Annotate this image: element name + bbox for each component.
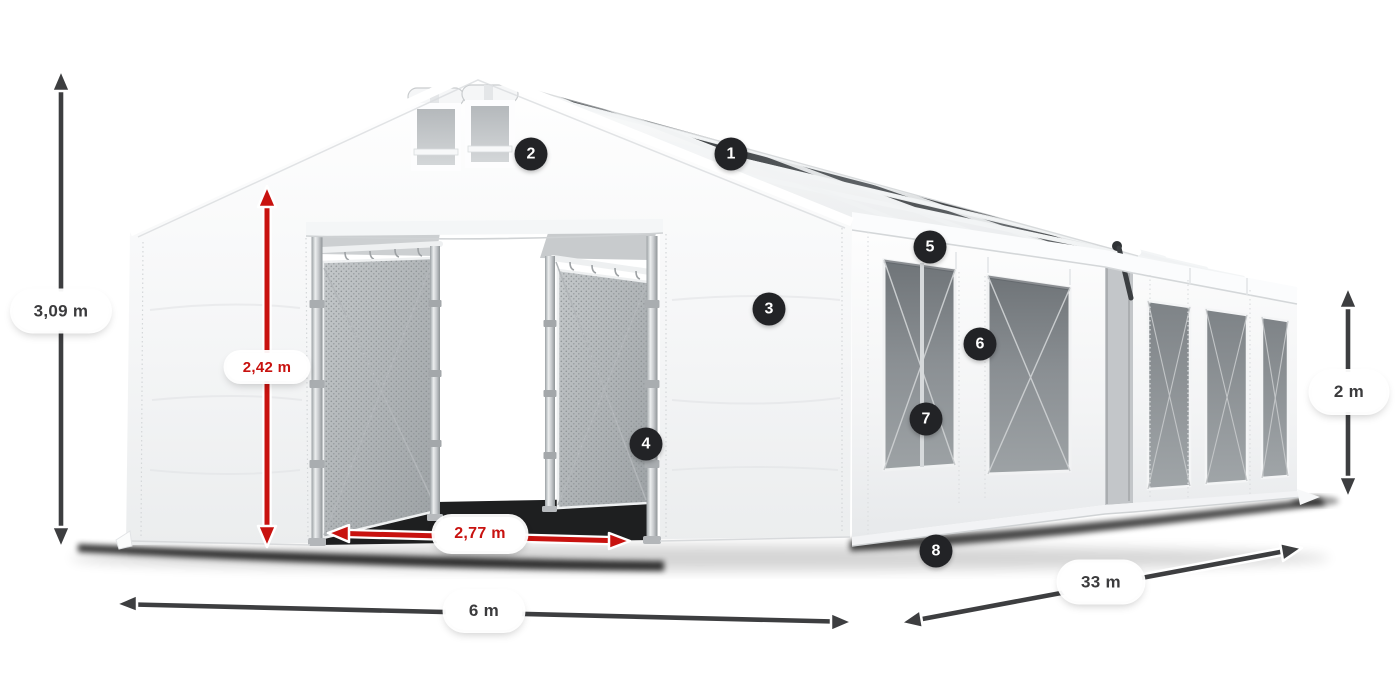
- gable-window: [462, 85, 518, 165]
- dim-label-width: 6 m: [446, 592, 523, 630]
- tent-figure: [0, 0, 1400, 700]
- sidewall-window-far: [1262, 317, 1288, 478]
- dim-label-total-height: 3,09 m: [13, 292, 109, 331]
- callout-badge-3: 3: [753, 293, 786, 326]
- dim-label-door-width: 2,77 m: [435, 517, 526, 551]
- module-joint-panel: [1105, 241, 1133, 505]
- tent-sidewall: [852, 212, 1320, 546]
- callout-badge-7: 7: [910, 403, 943, 436]
- door-leaf-right: [542, 256, 650, 512]
- dim-label-side-height: 2 m: [1312, 372, 1387, 412]
- callout-badge-8: 8: [920, 535, 953, 568]
- sidewall-window-far: [1206, 309, 1247, 484]
- callout-badge-6: 6: [964, 328, 997, 361]
- sidewall-window-far: [1148, 301, 1190, 489]
- dim-label-length: 33 m: [1060, 563, 1143, 602]
- callout-badge-1: 1: [715, 138, 748, 171]
- tent-diagram: 3,09 m 2,42 m 2,77 m 6 m 33 m 2 m 1 2 3 …: [0, 0, 1400, 700]
- door-leaf-left: [322, 244, 443, 538]
- callout-badge-4: 4: [630, 428, 663, 461]
- sidewall-window: [884, 260, 955, 470]
- sidewall-window: [988, 276, 1070, 474]
- dim-label-door-height: 2,42 m: [227, 353, 308, 381]
- callout-badge-2: 2: [515, 138, 548, 171]
- callout-badge-5: 5: [914, 231, 947, 264]
